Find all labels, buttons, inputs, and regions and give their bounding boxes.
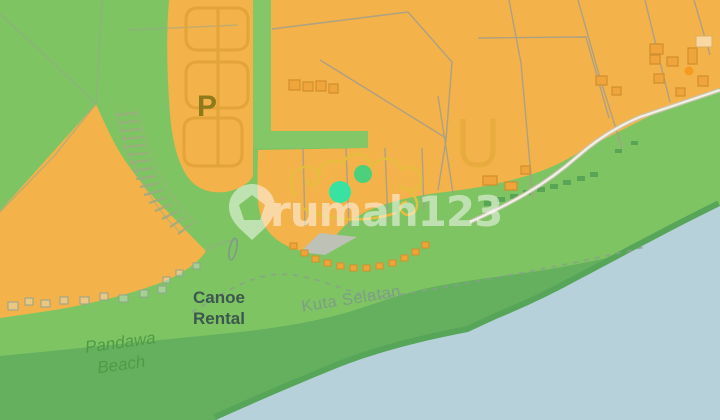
poi-canoe-rental-line2: Rental (193, 309, 245, 328)
watermark: rumah123 (229, 184, 502, 240)
listing-marker-secondary[interactable] (354, 165, 372, 183)
map-view[interactable]: P Canoe Rental Kuta Selatan Pandawa Beac… (0, 0, 720, 420)
parking-label: P (197, 90, 217, 123)
watermark-text: rumah123 (270, 187, 502, 236)
building-footprint-light (696, 36, 712, 47)
map-canvas[interactable]: P Canoe Rental Kuta Selatan Pandawa Beac… (0, 0, 720, 420)
poi-canoe-rental-line1: Canoe (193, 288, 245, 307)
poi-dot-amber[interactable] (685, 67, 694, 76)
